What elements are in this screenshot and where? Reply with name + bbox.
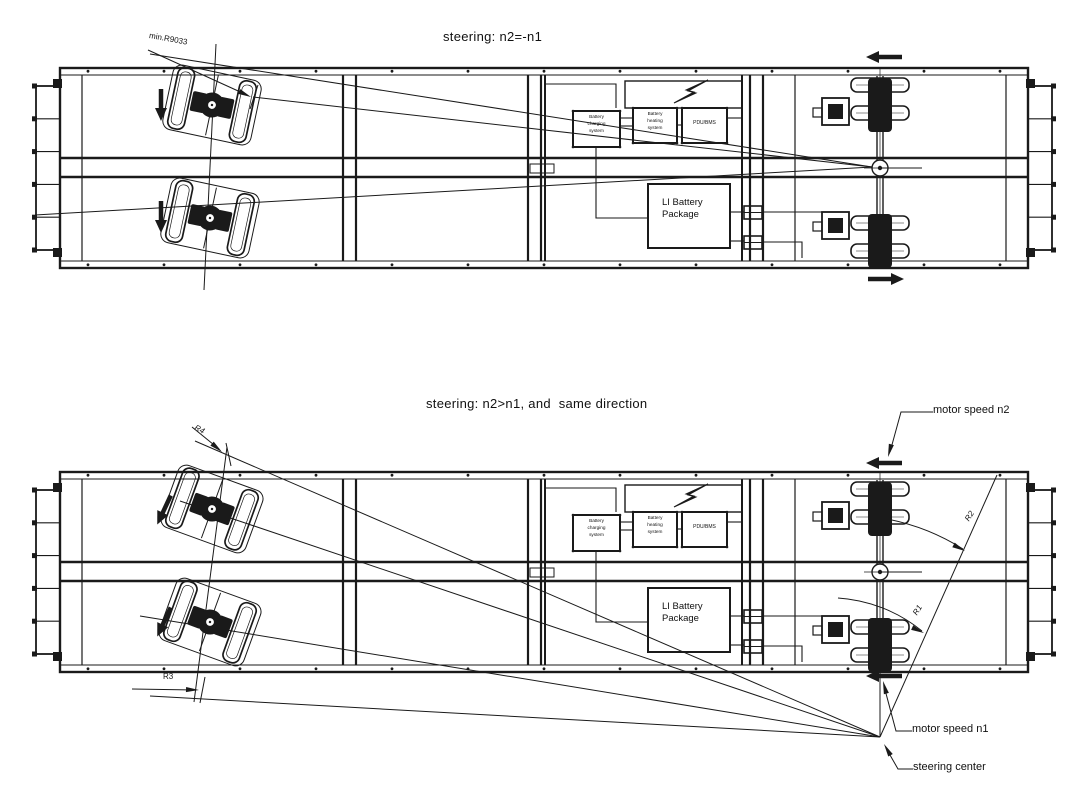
pdu-bms-label-bottom: PDU/BMS [682,525,727,531]
steer-wheel-assembly [159,176,261,259]
diagram2-annotations [132,412,997,769]
drawing-sheet: steering: n2=-n1 min.R9033 Battery charg… [0,0,1080,795]
direction-arrow [155,201,167,233]
steer-wheel-assembly [156,576,263,669]
direction-arrow [155,89,167,121]
diagram2 [132,412,997,769]
battery-heating-label-bottom: Battery heating system [633,514,677,535]
r3-label: R3 [163,672,173,681]
li-battery-label-top: LI Battery Package [662,197,703,222]
li-battery-label-bottom: LI Battery Package [662,601,703,626]
motor-speed-n1-label: motor speed n1 [912,723,988,736]
vehicle-bottom [32,447,1056,702]
pdu-bms-label-top: PDU/BMS [682,121,727,127]
battery-heating-label-top: Battery heating system [633,110,677,131]
direction-arrow [866,51,902,63]
vehicle-top [32,44,1056,290]
battery-charging-label-bottom: Battery charging system [573,517,620,538]
diagram1 [35,50,904,285]
diagram2-title: steering: n2>n1, and same direction [426,397,647,412]
diagram1-annotations [35,50,904,285]
steer-wheel-assembly [158,463,265,556]
direction-arrow [866,457,902,469]
diagram1-title: steering: n2=-n1 [443,30,542,45]
direction-arrow [868,273,904,285]
battery-charging-label-top: Battery charging system [573,113,620,134]
motor-speed-n2-label: motor speed n2 [933,404,1009,417]
steering-center-label: steering center [913,761,986,774]
